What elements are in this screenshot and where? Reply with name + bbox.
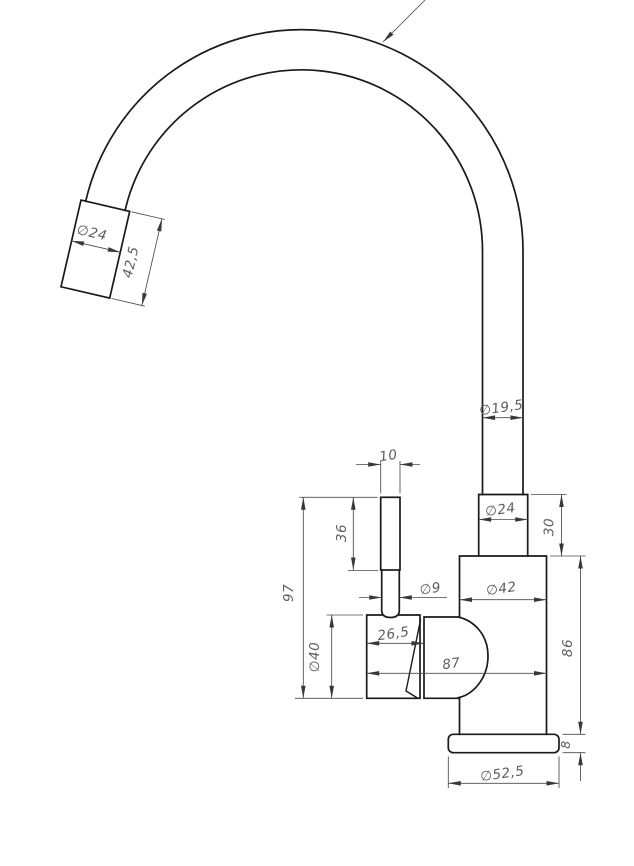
- arrowhead: [71, 239, 84, 246]
- base-flange: [448, 734, 559, 752]
- dim-lever-cap-height: 36: [300, 497, 379, 570]
- arrowhead: [367, 641, 380, 646]
- dim-handle-body-diameter: ∅40: [307, 615, 363, 698]
- arrowhead: [367, 671, 380, 676]
- leader-callout: [381, 0, 425, 44]
- arrowhead: [578, 753, 583, 766]
- arrowhead: [559, 495, 564, 508]
- dim-stem-diameter-label: ∅9: [419, 580, 442, 599]
- spray-head: [61, 200, 130, 298]
- arrowhead: [515, 517, 528, 522]
- arrowhead: [547, 781, 560, 786]
- dim-overall-depth-label: 87: [441, 655, 461, 673]
- arrowhead: [400, 462, 413, 467]
- arrowhead: [329, 615, 334, 628]
- arrowhead: [329, 686, 334, 699]
- dim-body-diameter-label: ∅42: [485, 579, 517, 599]
- dim-tube-diameter: ∅19,5: [478, 397, 524, 420]
- dim-connector-height: 30: [531, 495, 586, 557]
- arrowhead: [448, 781, 461, 786]
- drawing-sheet: ∅24 42,5 ∅19,5 10 36: [0, 0, 634, 866]
- arrowhead: [351, 558, 356, 571]
- spout-outer-curve: [86, 30, 523, 495]
- dim-handle-body-diameter-label: ∅40: [307, 642, 323, 672]
- dim-base-flange-thickness-label: 8: [558, 740, 573, 748]
- extension-line: [112, 299, 145, 307]
- dim-overall-depth: 87: [367, 655, 547, 676]
- dim-base-flange-diameter-label: ∅52,5: [479, 763, 525, 785]
- dim-body-height-label: 86: [560, 639, 576, 657]
- arrowhead: [460, 597, 473, 602]
- arrowhead: [157, 218, 164, 231]
- dim-connector-diameter-label: ∅24: [484, 500, 516, 520]
- faucet-technical-drawing: ∅24 42,5 ∅19,5 10 36: [0, 0, 634, 866]
- arrowhead: [108, 247, 121, 254]
- extension-line: [132, 212, 165, 220]
- lever-stem: [382, 570, 400, 618]
- dim-lever-cap-width-label: 10: [378, 447, 398, 465]
- lever-cap: [381, 497, 400, 570]
- dim-body-diameter: ∅42: [460, 579, 547, 602]
- arrowhead: [578, 556, 583, 569]
- dim-connector-height-label: 30: [542, 518, 558, 536]
- dim-base-flange-thickness: 8: [558, 740, 586, 781]
- arrowhead: [534, 597, 547, 602]
- arrowhead: [399, 595, 412, 600]
- arrowhead: [578, 722, 583, 735]
- arrowhead: [140, 293, 147, 306]
- dim-spray-head-length-label: 42,5: [120, 245, 143, 280]
- arrowhead: [412, 641, 425, 646]
- dim-base-flange-diameter: ∅52,5: [448, 757, 559, 789]
- arrowhead: [511, 415, 524, 420]
- dim-spray-head-diameter: ∅24: [71, 222, 121, 255]
- dim-handle-body-depth: 26,5: [367, 624, 424, 646]
- arrowhead: [368, 462, 381, 467]
- spout-inner-curve: [125, 70, 482, 495]
- arrowhead: [369, 595, 382, 600]
- dim-spray-head-diameter-label: ∅24: [75, 222, 108, 244]
- dim-handle-body-depth-label: 26,5: [376, 624, 410, 644]
- arrowhead: [301, 497, 306, 510]
- dim-tube-diameter-label: ∅19,5: [478, 397, 524, 419]
- arrowhead: [534, 671, 547, 676]
- dim-lever-cap-width: 10: [356, 447, 420, 494]
- dim-lever-cap-height-label: 36: [334, 524, 350, 542]
- arrowhead: [351, 497, 356, 510]
- dim-stem-diameter: ∅9: [359, 580, 447, 600]
- leader-arrow: [381, 32, 393, 44]
- arrowhead: [559, 544, 564, 557]
- dim-connector-diameter: ∅24: [479, 500, 528, 522]
- dim-body-height: 86: [560, 556, 586, 734]
- dim-lever-overall-height-label: 97: [281, 584, 297, 602]
- dim-line: [142, 219, 162, 306]
- arrowhead: [301, 686, 306, 699]
